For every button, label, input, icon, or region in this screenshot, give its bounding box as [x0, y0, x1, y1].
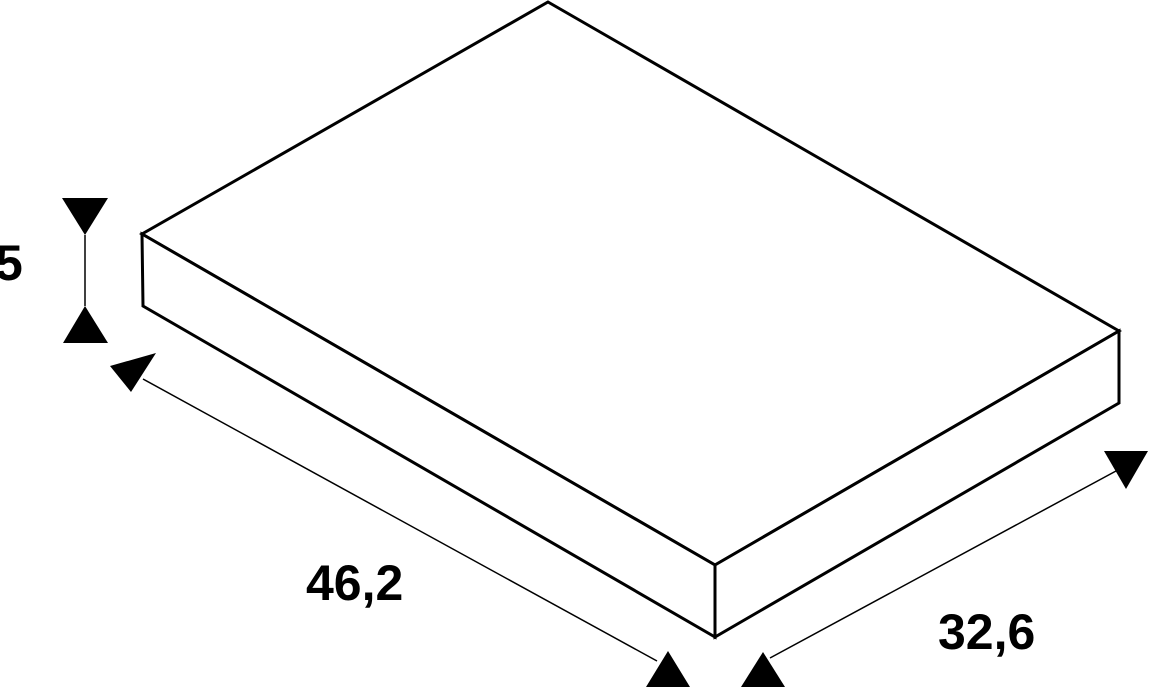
- length-dimension-label: 46,2: [306, 558, 403, 608]
- drawing-canvas: [0, 0, 1150, 688]
- length-arrow-end-icon: [646, 651, 690, 687]
- dimension-drawing: 5 46,2 32,6: [0, 0, 1150, 688]
- width-arrow-end-icon: [1104, 451, 1148, 489]
- height-arrow-bottom-icon: [63, 306, 108, 343]
- height-dimension-label: 5: [0, 238, 23, 288]
- height-arrow-top-icon: [62, 198, 108, 235]
- length-arrow-start-icon: [110, 353, 156, 392]
- width-arrow-start-icon: [741, 652, 785, 687]
- width-dimension-label: 32,6: [938, 607, 1035, 657]
